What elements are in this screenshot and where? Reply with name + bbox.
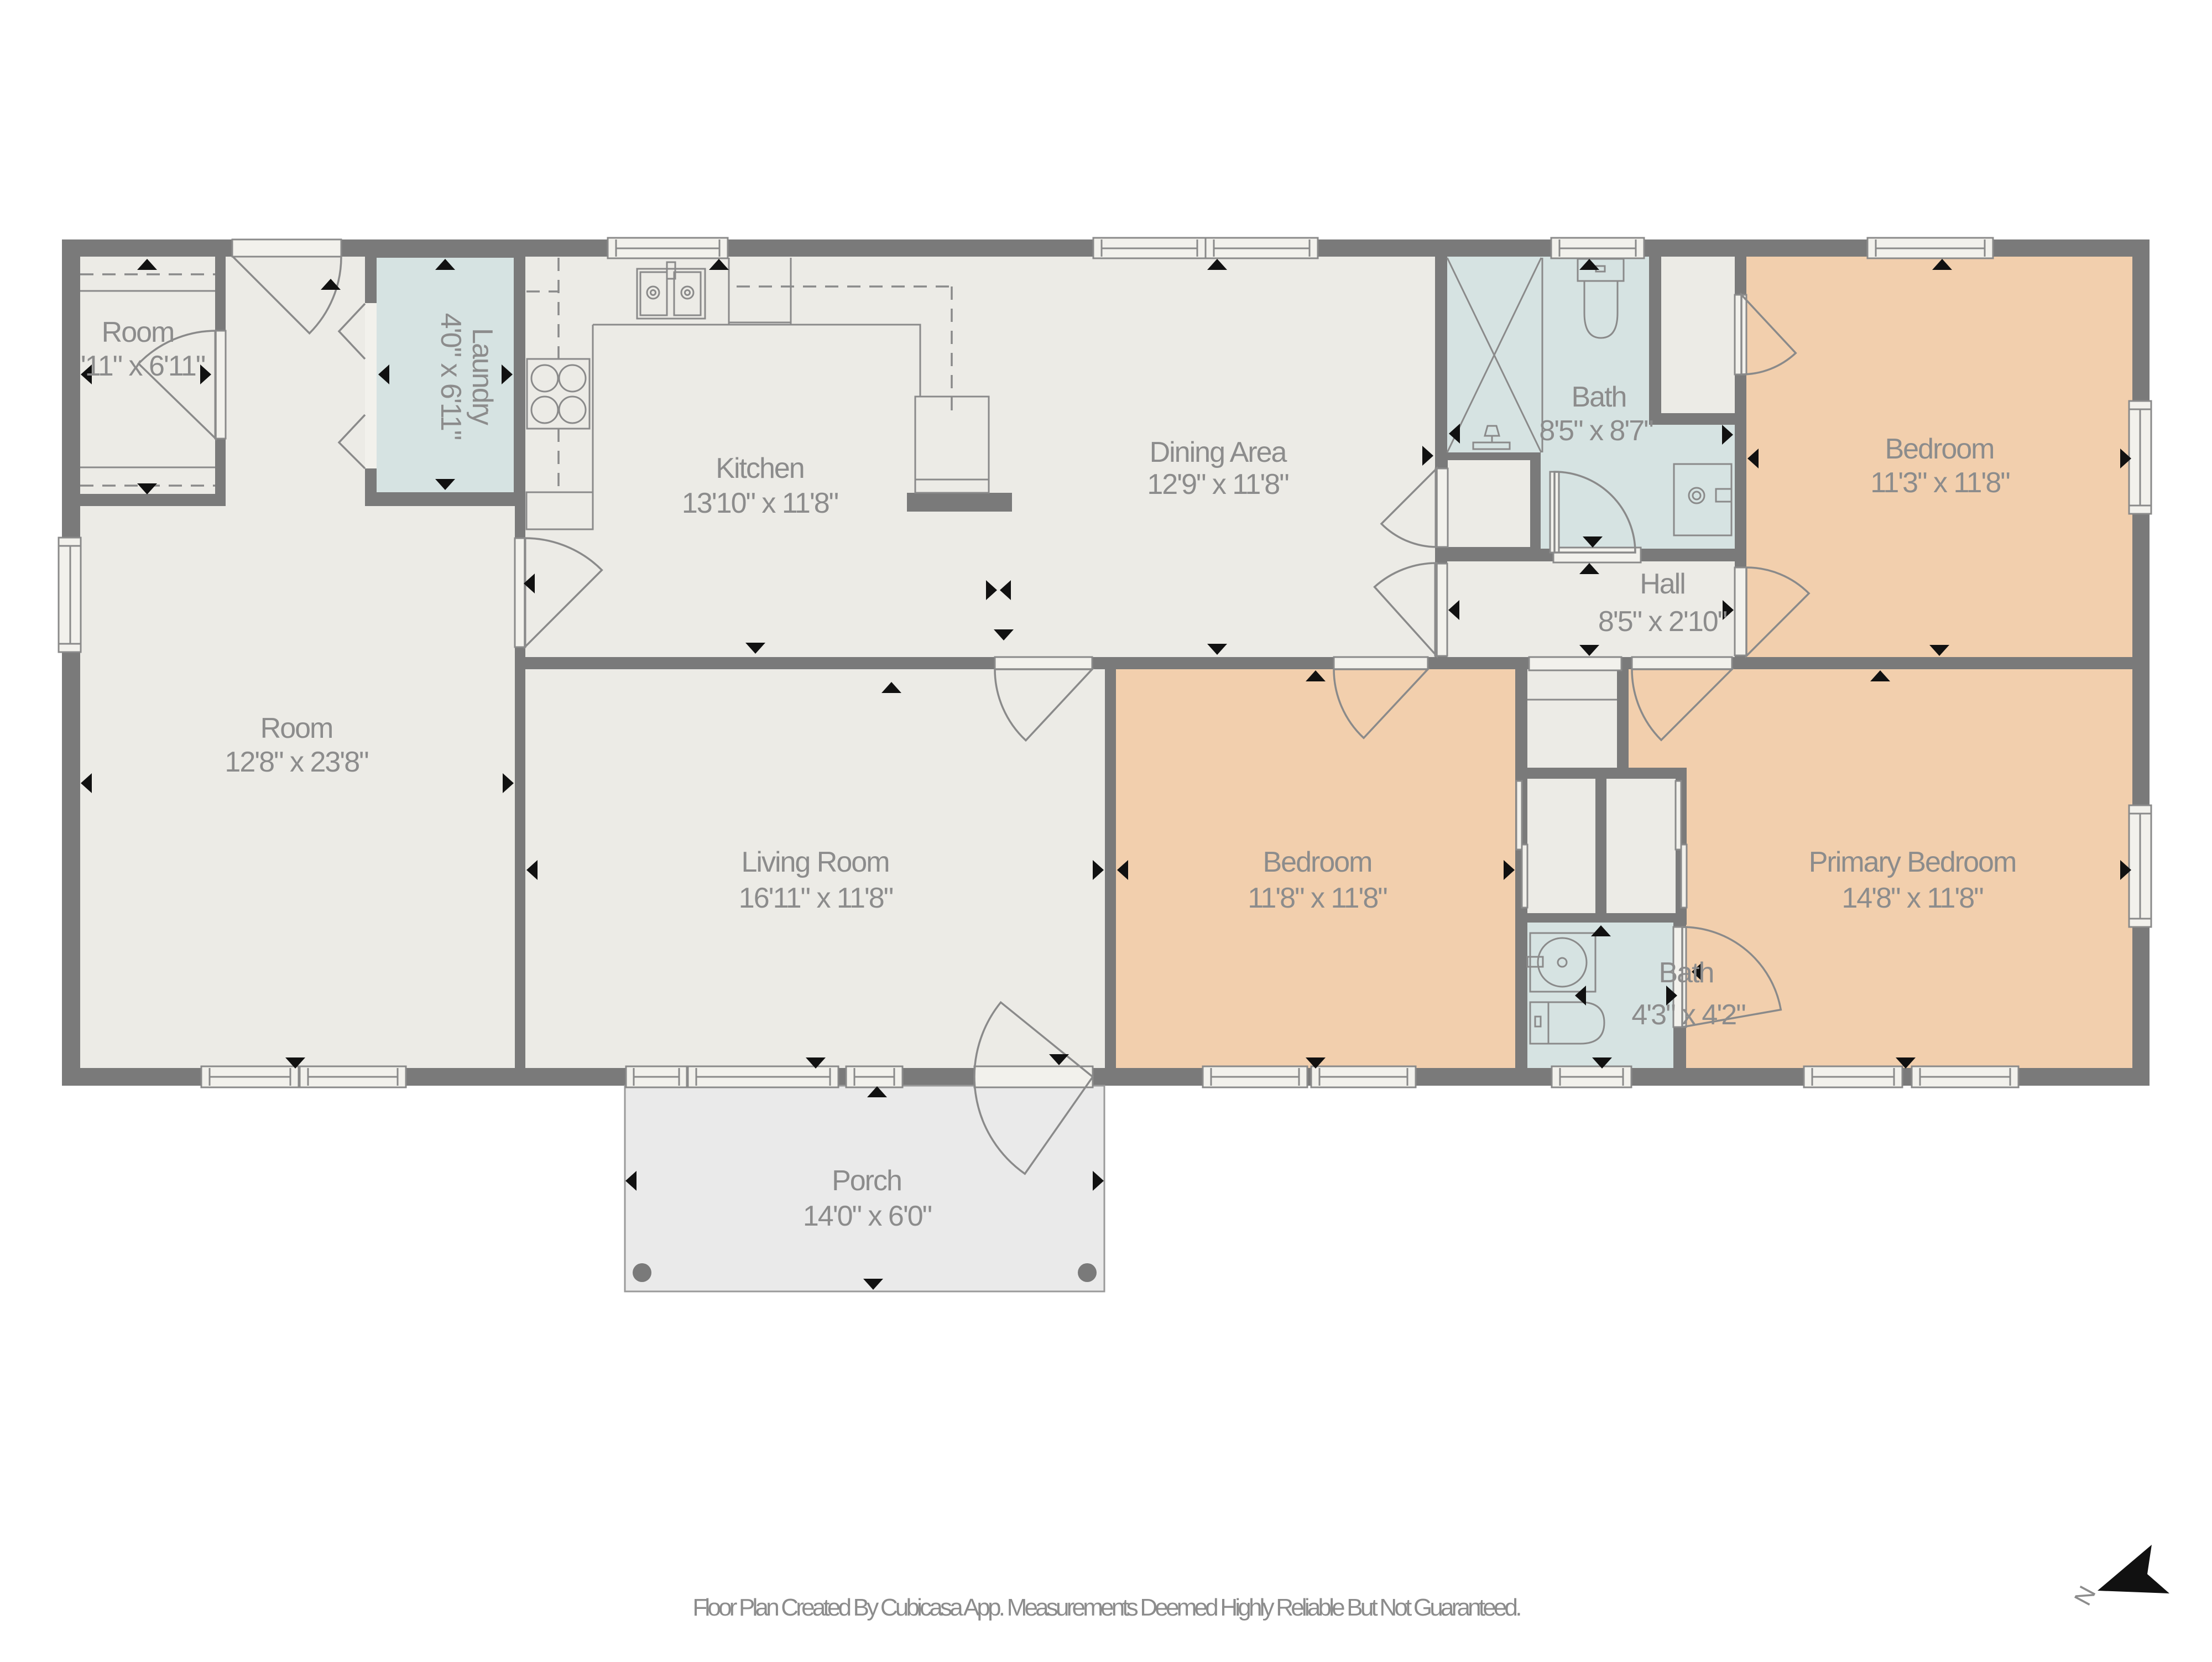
svg-text:4'3" x 4'2": 4'3" x 4'2" — [1631, 999, 1745, 1031]
svg-text:Floor Plan Created By Cubicasa: Floor Plan Created By Cubicasa App. Meas… — [692, 1594, 1520, 1621]
svg-text:Bath: Bath — [1659, 957, 1714, 989]
svg-text:'11" x 6'11": '11" x 6'11" — [81, 350, 205, 382]
svg-text:Primary Bedroom: Primary Bedroom — [1809, 846, 2016, 878]
svg-text:11'3" x 11'8": 11'3" x 11'8" — [1870, 467, 2010, 499]
svg-text:8'5" x 2'10": 8'5" x 2'10" — [1598, 606, 1727, 638]
svg-text:Living Room: Living Room — [741, 846, 889, 878]
svg-text:13'10" x 11'8": 13'10" x 11'8" — [682, 487, 838, 519]
svg-text:Bedroom: Bedroom — [1885, 433, 1994, 465]
svg-text:Porch: Porch — [832, 1165, 901, 1197]
svg-text:Room: Room — [260, 712, 333, 744]
svg-text:14'8" x 11'8": 14'8" x 11'8" — [1841, 882, 1983, 914]
svg-text:Room: Room — [102, 316, 174, 348]
svg-text:Kitchen: Kitchen — [716, 452, 804, 484]
svg-text:11'8" x 11'8": 11'8" x 11'8" — [1248, 882, 1387, 914]
svg-text:Dining Area: Dining Area — [1150, 436, 1287, 468]
svg-text:14'0" x 6'0": 14'0" x 6'0" — [803, 1200, 932, 1232]
svg-text:Hall: Hall — [1640, 568, 1685, 600]
svg-text:16'11" x 11'8": 16'11" x 11'8" — [739, 882, 893, 914]
svg-text:Bedroom: Bedroom — [1263, 846, 1372, 878]
svg-text:8'5" x 8'7": 8'5" x 8'7" — [1539, 415, 1653, 447]
svg-text:Bath: Bath — [1572, 381, 1626, 413]
svg-text:4'0" x 6'11": 4'0" x 6'11" — [435, 313, 467, 440]
svg-text:12'9" x 11'8": 12'9" x 11'8" — [1147, 468, 1288, 501]
svg-text:Laundry: Laundry — [466, 328, 498, 425]
svg-text:12'8" x 23'8": 12'8" x 23'8" — [225, 746, 368, 778]
